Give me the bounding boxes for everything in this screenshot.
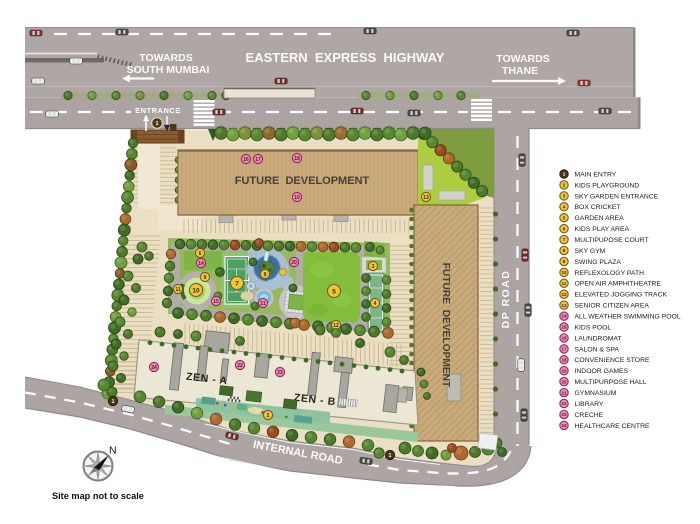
svg-text:15: 15 — [561, 325, 567, 330]
svg-text:13: 13 — [423, 195, 429, 201]
svg-text:BOX CRICKET: BOX CRICKET — [575, 204, 621, 211]
svg-text:CONVENIENCE STORE: CONVENIENCE STORE — [575, 357, 650, 364]
svg-text:MULTIPUPOSE COURT: MULTIPUPOSE COURT — [575, 237, 649, 244]
svg-text:LAUNDROMAT: LAUNDROMAT — [575, 335, 622, 342]
svg-text:14: 14 — [561, 314, 567, 319]
svg-text:18: 18 — [561, 358, 567, 363]
svg-text:TOWARDS: TOWARDS — [139, 52, 192, 64]
svg-text:GARDEN AREA: GARDEN AREA — [575, 215, 625, 222]
svg-text:SENIOR CITIZEN AREA: SENIOR CITIZEN AREA — [575, 303, 650, 310]
svg-text:7: 7 — [563, 237, 566, 242]
svg-text:INDOOR GAMES: INDOOR GAMES — [575, 368, 629, 375]
svg-text:16: 16 — [561, 336, 567, 341]
svg-text:12: 12 — [561, 292, 567, 297]
svg-text:9: 9 — [563, 259, 566, 264]
svg-text:ELEVATED JOGGING TRACK: ELEVATED JOGGING TRACK — [575, 292, 668, 299]
svg-text:SOUTH MUMBAI: SOUTH MUMBAI — [127, 64, 210, 76]
svg-text:SKY GYM: SKY GYM — [575, 248, 606, 255]
svg-text:5: 5 — [332, 288, 336, 295]
svg-text:18: 18 — [294, 156, 300, 162]
svg-text:N: N — [109, 445, 117, 457]
svg-text:2: 2 — [563, 183, 566, 188]
svg-text:Site map not to scale: Site map not to scale — [52, 491, 144, 501]
svg-text:ENTRANCE: ENTRANCE — [135, 106, 181, 115]
svg-text:17: 17 — [561, 347, 567, 352]
svg-text:2: 2 — [267, 413, 270, 419]
svg-text:16: 16 — [243, 157, 249, 163]
svg-text:HEALTHCARE CENTRE: HEALTHCARE CENTRE — [575, 423, 650, 430]
svg-text:SALON & SPA: SALON & SPA — [575, 346, 620, 353]
svg-text:9: 9 — [204, 275, 207, 281]
svg-text:MAIN ENTRY: MAIN ENTRY — [575, 171, 617, 178]
svg-text:FUTURE DEVELOPMENT: FUTURE DEVELOPMENT — [440, 263, 451, 388]
svg-text:DP ROAD: DP ROAD — [500, 270, 512, 329]
svg-text:1: 1 — [563, 172, 566, 177]
svg-text:LIBRARY: LIBRARY — [575, 401, 604, 408]
svg-text:OPEN AIR AMPHITHEATRE: OPEN AIR AMPHITHEATRE — [575, 281, 662, 288]
svg-text:21: 21 — [561, 390, 567, 395]
svg-text:20: 20 — [291, 260, 297, 266]
svg-text:5: 5 — [563, 215, 566, 220]
svg-text:KIDS POOL: KIDS POOL — [575, 324, 612, 331]
svg-text:8: 8 — [563, 248, 566, 253]
svg-text:SKY GARDEN ENTRANCE: SKY GARDEN ENTRANCE — [575, 193, 659, 200]
svg-text:KIDS PLAYGROUND: KIDS PLAYGROUND — [575, 182, 640, 189]
svg-text:23: 23 — [277, 370, 283, 376]
svg-text:19: 19 — [294, 195, 300, 201]
svg-text:TOWARDS: TOWARDS — [496, 53, 549, 65]
svg-text:EASTERN EXPRESS HIGHWAY: EASTERN EXPRESS HIGHWAY — [246, 50, 445, 65]
svg-text:3: 3 — [372, 264, 375, 270]
svg-text:8: 8 — [264, 272, 267, 278]
svg-text:FUTURE DEVELOPMENT: FUTURE DEVELOPMENT — [235, 175, 370, 187]
svg-text:4: 4 — [374, 301, 377, 307]
svg-text:22: 22 — [237, 363, 243, 369]
svg-text:SWING PLAZA: SWING PLAZA — [575, 259, 622, 266]
svg-text:12: 12 — [333, 323, 339, 329]
svg-text:19: 19 — [561, 368, 567, 373]
svg-text:REFLEXOLOGY PATH: REFLEXOLOGY PATH — [575, 270, 645, 277]
svg-text:11: 11 — [562, 281, 567, 286]
svg-text:GYMNASIUM: GYMNASIUM — [575, 390, 617, 397]
svg-text:7: 7 — [235, 280, 239, 287]
svg-text:13: 13 — [561, 303, 567, 308]
svg-text:20: 20 — [561, 379, 567, 384]
svg-text:24: 24 — [561, 423, 567, 428]
svg-text:23: 23 — [561, 412, 567, 417]
svg-text:6: 6 — [199, 251, 202, 257]
svg-text:22: 22 — [561, 401, 567, 406]
svg-text:10: 10 — [561, 270, 567, 275]
svg-text:21: 21 — [260, 301, 266, 307]
svg-text:14: 14 — [198, 261, 204, 267]
svg-text:17: 17 — [255, 157, 261, 163]
svg-text:4: 4 — [563, 204, 566, 209]
svg-text:KIDS PLAY AREA: KIDS PLAY AREA — [575, 226, 630, 233]
svg-text:MULTIPURPOSE HALL: MULTIPURPOSE HALL — [575, 379, 647, 386]
svg-text:24: 24 — [151, 365, 157, 371]
svg-text:1: 1 — [155, 121, 158, 127]
svg-text:1: 1 — [112, 399, 115, 405]
svg-text:3: 3 — [563, 194, 566, 199]
svg-text:1: 1 — [389, 453, 392, 459]
svg-text:THANE: THANE — [502, 65, 538, 77]
svg-text:ALL WEATHER SWIMMING POOL: ALL WEATHER SWIMMING POOL — [575, 314, 681, 321]
svg-text:11: 11 — [175, 287, 181, 293]
svg-text:15: 15 — [213, 299, 219, 305]
svg-text:CRECHE: CRECHE — [575, 412, 604, 419]
svg-text:10: 10 — [192, 287, 200, 294]
svg-text:6: 6 — [563, 226, 566, 231]
